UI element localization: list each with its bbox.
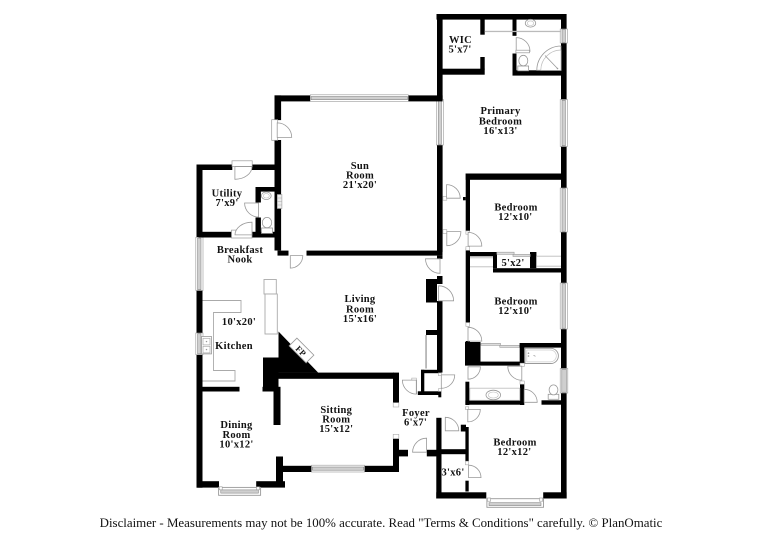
svg-text:12'x10': 12'x10' [498,306,532,317]
svg-text:6'x7': 6'x7' [404,418,427,429]
svg-text:10'x20': 10'x20' [222,317,256,328]
svg-text:12'x12': 12'x12' [497,447,531,458]
svg-text:10'x12': 10'x12' [219,439,253,450]
svg-text:15'x12': 15'x12' [319,424,353,435]
svg-text:5'x7': 5'x7' [448,44,471,55]
svg-text:Nook: Nook [227,255,252,266]
svg-text:16'x13': 16'x13' [483,126,517,137]
svg-text:Kitchen: Kitchen [215,341,253,352]
svg-text:5'x2': 5'x2' [501,258,524,269]
svg-text:7'x9': 7'x9' [215,198,238,209]
svg-text:12'x10': 12'x10' [498,212,532,223]
svg-text:3'x6': 3'x6' [441,468,464,479]
svg-text:Living: Living [345,294,376,305]
svg-text:15'x16': 15'x16' [343,314,377,325]
svg-text:Disclaimer - Measurements may: Disclaimer - Measurements may not be 100… [100,516,663,530]
svg-text:21'x20': 21'x20' [343,180,377,191]
